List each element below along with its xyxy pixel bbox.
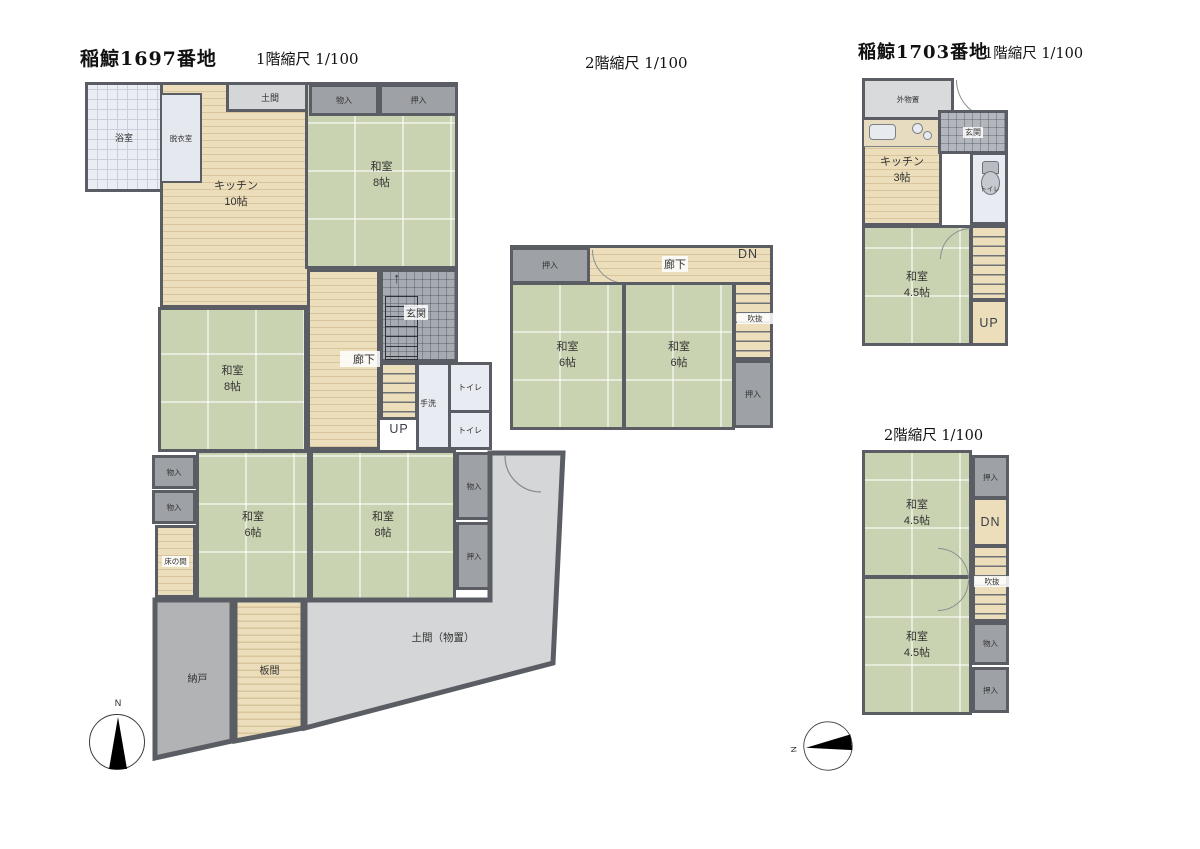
room-label: 土間 (261, 91, 279, 104)
room-label-toilet-1703: トイレ (972, 183, 1008, 193)
room-label: 和室8帖 (222, 364, 244, 396)
sink-icon (869, 124, 896, 140)
room-label-rouka-2f: 廊下 (662, 256, 688, 272)
room-label: 押入 (983, 472, 998, 483)
room-oshiire-top: 押入 (379, 84, 458, 116)
room-oshiire-2f-1703-bottom: 押入 (972, 667, 1009, 713)
room-label: トイレ (458, 425, 482, 436)
room-bath: 浴室 (85, 82, 163, 192)
north-compass-1697: N (88, 698, 148, 776)
room-label: 押入 (745, 389, 761, 400)
north-label: N (789, 746, 798, 753)
room-doma-storage-shape (305, 453, 563, 728)
room-label: 和室4.5帖 (904, 630, 930, 662)
label-dn-2f: DN (738, 247, 758, 261)
room-oshiire-2f-tl: 押入 (510, 247, 590, 284)
stair-landing-1703: UP (970, 299, 1008, 346)
floorplan-sheet: 稲鯨1697番地 1階縮尺 1/100 2階縮尺 1/100 稲鯨1703番地 … (0, 0, 1200, 849)
room-oshiire-2f-br: 押入 (733, 360, 773, 428)
plan-title-1703: 稲鯨1703番地 (858, 38, 988, 64)
scale-label-1697-2f: 2階縮尺 1/100 (585, 52, 688, 73)
label-dn-1703: DN (980, 515, 1000, 529)
room-label: 和室8帖 (371, 160, 393, 192)
label-up: UP (378, 422, 420, 436)
room-label: 脱衣室 (170, 133, 193, 144)
room-monoiri-top: 物入 (309, 84, 379, 116)
label-up-1703: UP (979, 316, 998, 330)
room-label: 和室4.5帖 (904, 498, 930, 530)
scale-label-1703-2f: 2階縮尺 1/100 (884, 424, 983, 445)
stove-burner-icon (923, 131, 932, 140)
label-fukinuke-2f: 吹抜 (737, 313, 773, 324)
room-label-kitchen-1703: キッチン3帖 (868, 155, 936, 187)
room-label: トイレ (458, 382, 482, 393)
room-label-doma-storage: 土間（物置） (398, 630, 488, 645)
stairs-1703-1f (970, 225, 1008, 301)
room-monoiri-1703-2f: 物入 (972, 622, 1009, 665)
north-label: N (115, 698, 122, 708)
room-label: 浴室 (115, 131, 133, 144)
room-label-nando: 納戸 (175, 670, 220, 685)
room-toilet-1: トイレ (448, 362, 492, 413)
room-label: キッチン10帖 (214, 179, 258, 211)
scale-label-1697-1f: 1階縮尺 1/100 (256, 48, 359, 69)
room-label: 玄関 (963, 127, 983, 138)
room-label-genkan: 玄関 (404, 305, 428, 320)
room-label: 和室6帖 (668, 340, 690, 372)
room-label: 物入 (983, 638, 998, 649)
north-compass-1703: N (786, 715, 861, 776)
room-label: 和室6帖 (557, 340, 579, 372)
room-label: 和室4.5帖 (904, 270, 930, 302)
room-label: 押入 (411, 95, 427, 106)
room-doma-top: 土間 (226, 82, 314, 112)
stove-burner-icon (912, 123, 923, 134)
room-label: 外物置 (897, 94, 920, 105)
room-label: 押入 (542, 260, 558, 271)
room-dressing: 脱衣室 (160, 93, 202, 183)
room-label: 物入 (336, 95, 352, 106)
room-washitsu-6-2f-left: 和室6帖 (510, 282, 625, 430)
irregular-bottom-region (150, 440, 575, 770)
label-fukinuke-1703: 吹抜 (974, 576, 1010, 587)
room-washitsu-6-2f-right: 和室6帖 (623, 282, 735, 430)
room-washitsu-8-mid: 和室8帖 (158, 307, 307, 452)
scale-label-1703-1f: 1階縮尺 1/100 (984, 42, 1083, 63)
stair-landing-dn: DN (972, 497, 1009, 547)
room-oshiire-2f-1703-top: 押入 (972, 455, 1009, 499)
room-label-itama: 板間 (247, 662, 292, 677)
room-label: 押入 (983, 685, 998, 696)
room-genkan-1703: 玄関 (938, 110, 1008, 154)
plan-title-1697: 稲鯨1697番地 (80, 44, 217, 71)
stairs-up-1697 (380, 362, 418, 420)
room-label-tearai: 手洗 (420, 398, 436, 409)
up-arrow-icon: ↑ (393, 270, 401, 287)
